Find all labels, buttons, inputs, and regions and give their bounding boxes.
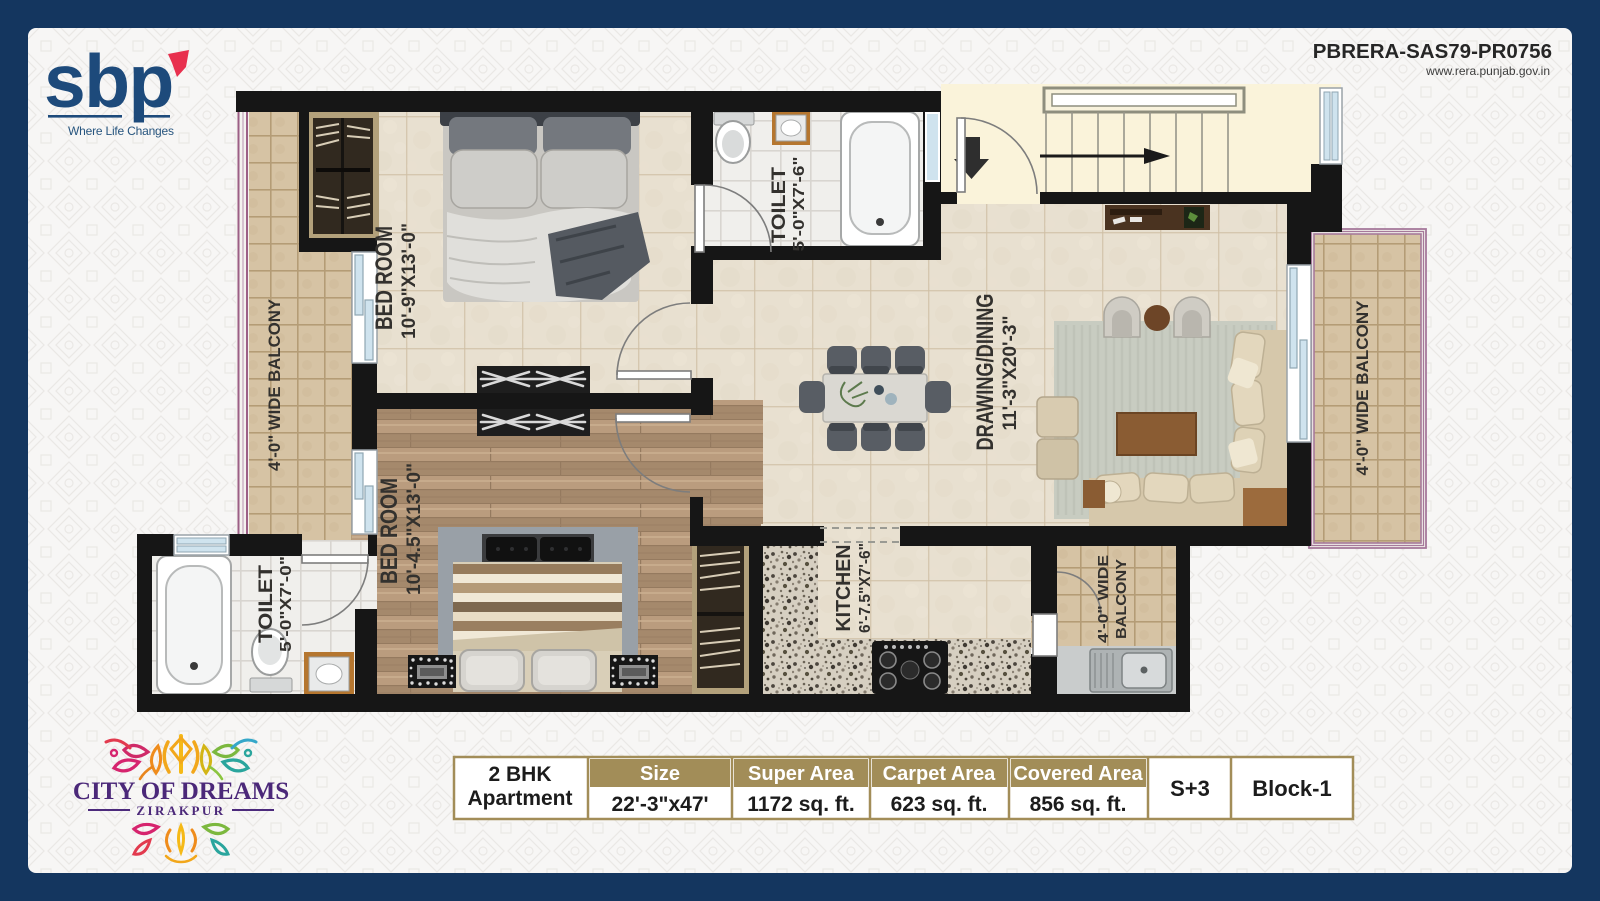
svg-text:PBRERA-SAS79-PR0756: PBRERA-SAS79-PR0756 (1313, 40, 1552, 63)
svg-text:Covered Area: Covered Area (1013, 763, 1143, 785)
svg-text:CITY OF DREAMS: CITY OF DREAMS (73, 778, 289, 805)
svg-text:22'-3"x47': 22'-3"x47' (611, 793, 708, 816)
svg-text:Carpet Area: Carpet Area (883, 763, 997, 785)
svg-text:BED ROOM: BED ROOM (371, 226, 398, 330)
svg-text:4'-0" WIDE BALCONY: 4'-0" WIDE BALCONY (265, 298, 284, 471)
svg-text:BALCONY: BALCONY (1113, 559, 1130, 639)
svg-text:BED ROOM: BED ROOM (376, 478, 403, 584)
svg-text:TOILET: TOILET (256, 565, 277, 643)
svg-text:10'-4.5"X13'-0": 10'-4.5"X13'-0" (404, 463, 425, 595)
svg-text:11'-3"X20'-3": 11'-3"X20'-3" (1000, 316, 1021, 431)
svg-text:ZIRAKPUR: ZIRAKPUR (136, 803, 225, 818)
svg-text:1172 sq. ft.: 1172 sq. ft. (747, 793, 854, 816)
svg-text:TOILET: TOILET (769, 167, 790, 243)
svg-text:4'-0" WIDE BALCONY: 4'-0" WIDE BALCONY (1353, 300, 1372, 476)
svg-text:www.rera.punjab.gov.in: www.rera.punjab.gov.in (1425, 64, 1550, 78)
svg-text:Super Area: Super Area (748, 763, 855, 785)
svg-text:5'-0"X7'-0": 5'-0"X7'-0" (278, 556, 295, 652)
svg-text:6'-7.5"X7'-6": 6'-7.5"X7'-6" (857, 543, 874, 633)
svg-text:Block-1: Block-1 (1252, 776, 1331, 801)
svg-text:623 sq. ft.: 623 sq. ft. (891, 793, 988, 816)
svg-text:Apartment: Apartment (467, 787, 572, 810)
svg-text:DRAWING/DINING: DRAWING/DINING (972, 294, 999, 451)
svg-text:sbp: sbp (44, 39, 173, 123)
svg-text:10'-9"X13'-0": 10'-9"X13'-0" (399, 223, 420, 339)
svg-text:856 sq. ft.: 856 sq. ft. (1030, 793, 1127, 816)
svg-text:5'-0"X7'-6": 5'-0"X7'-6" (791, 157, 808, 252)
svg-text:S+3: S+3 (1170, 776, 1210, 801)
svg-text:KITCHEN: KITCHEN (833, 545, 855, 632)
svg-text:Where Life Changes: Where Life Changes (68, 124, 174, 138)
svg-text:2 BHK: 2 BHK (488, 763, 551, 786)
svg-text:Size: Size (640, 763, 680, 785)
svg-text:4'-0" WIDE: 4'-0" WIDE (1095, 555, 1112, 643)
